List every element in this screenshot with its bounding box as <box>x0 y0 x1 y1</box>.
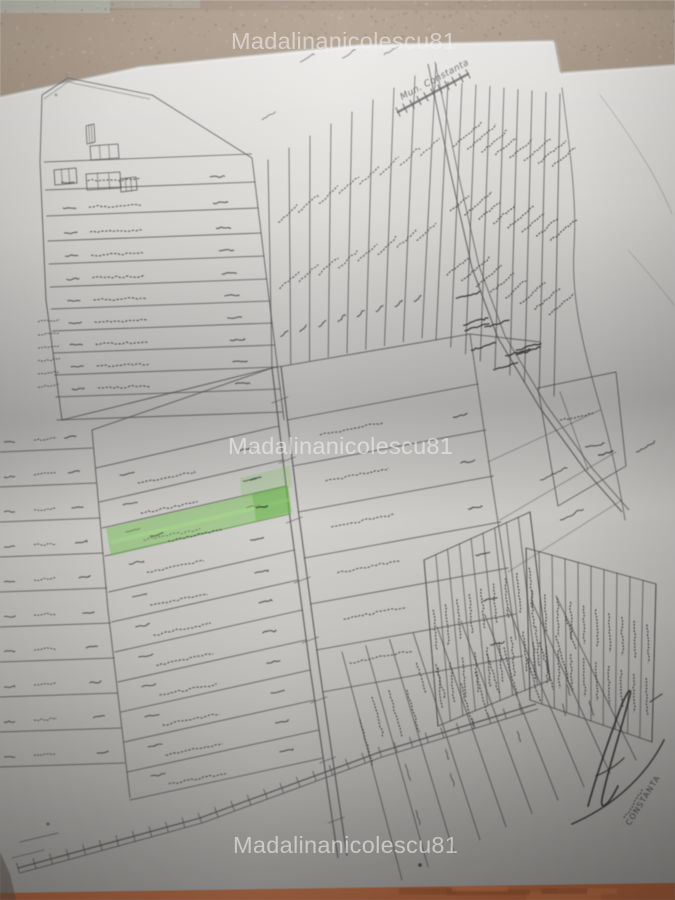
stamp-constanta-label: CONSTANTA <box>624 774 662 827</box>
watermark-middle: Madalinanicolescu81 <box>228 433 453 460</box>
watermark-bottom: Madalinanicolescu81 <box>233 832 458 859</box>
watermark-top: Madalinanicolescu81 <box>231 28 456 55</box>
signature <box>572 691 664 824</box>
photo-of-cadastral-map: Mun. ConstantaCONSTANTA Madalinanicolesc… <box>0 0 675 900</box>
map-linework <box>0 62 675 880</box>
table-edge <box>0 852 675 900</box>
